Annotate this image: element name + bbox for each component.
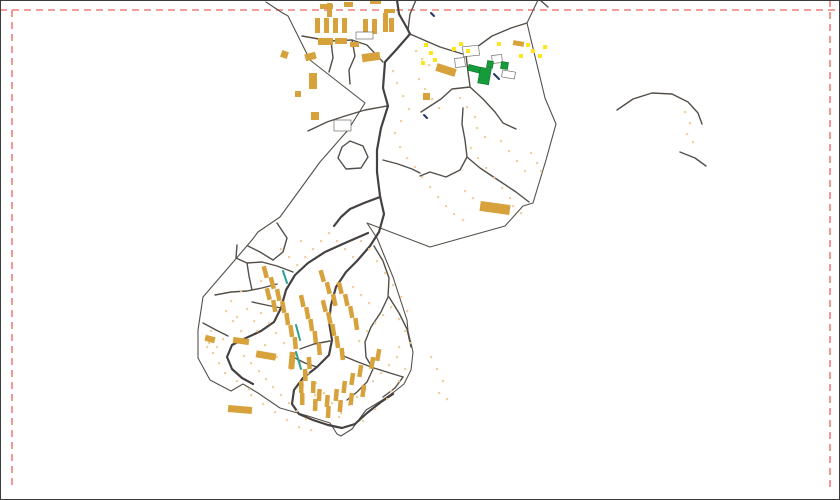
page-frame-border bbox=[0, 0, 840, 500]
plot-page bbox=[0, 0, 840, 500]
